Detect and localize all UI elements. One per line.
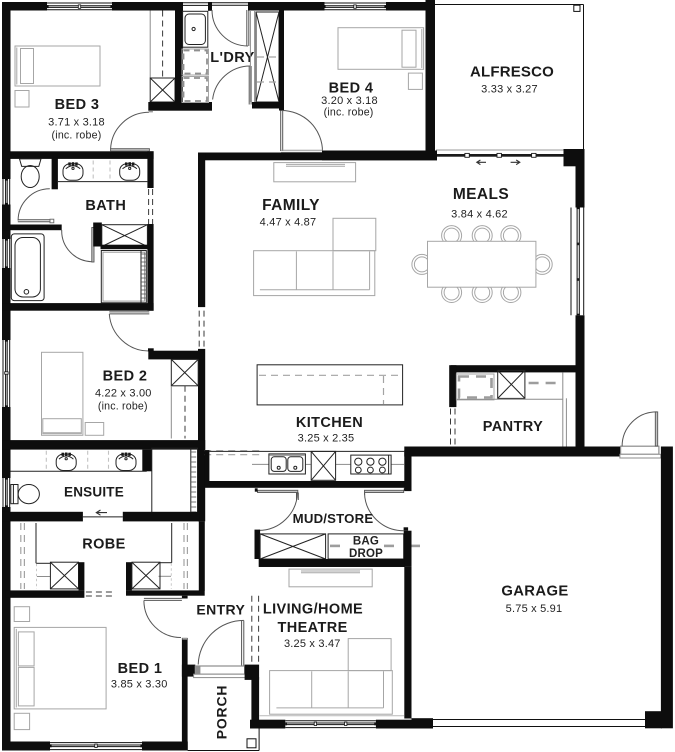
svg-text:3.33 x 3.27: 3.33 x 3.27 — [481, 84, 538, 96]
svg-text:PORCH: PORCH — [214, 685, 230, 740]
svg-text:GARAGE: GARAGE — [501, 584, 568, 600]
svg-text:(inc. robe): (inc. robe) — [52, 130, 102, 142]
svg-text:DROP: DROP — [349, 548, 383, 560]
svg-text:4.47 x 4.87: 4.47 x 4.87 — [260, 217, 317, 229]
svg-text:KITCHEN: KITCHEN — [296, 415, 363, 431]
svg-text:BAG: BAG — [353, 536, 379, 548]
svg-text:PANTRY: PANTRY — [483, 419, 543, 435]
svg-text:(inc. robe): (inc. robe) — [324, 107, 374, 119]
svg-text:BED 2: BED 2 — [103, 369, 148, 385]
svg-text:L'DRY: L'DRY — [210, 50, 254, 66]
svg-text:3.85 x 3.30: 3.85 x 3.30 — [111, 678, 168, 690]
svg-text:ENTRY: ENTRY — [196, 602, 245, 618]
svg-text:ENSUITE: ENSUITE — [64, 485, 124, 500]
svg-text:3.25 x 2.35: 3.25 x 2.35 — [298, 433, 355, 445]
svg-text:BED 3: BED 3 — [55, 97, 100, 113]
svg-text:BED 1: BED 1 — [118, 661, 163, 677]
svg-text:3.84 x 4.62: 3.84 x 4.62 — [451, 209, 508, 221]
svg-text:3.20 x 3.18: 3.20 x 3.18 — [321, 95, 378, 107]
svg-text:FAMILY: FAMILY — [262, 197, 320, 214]
svg-text:3.25 x 3.47: 3.25 x 3.47 — [284, 638, 341, 650]
svg-text:BATH: BATH — [85, 198, 126, 214]
svg-text:MEALS: MEALS — [453, 186, 509, 203]
svg-text:4.22 x 3.00: 4.22 x 3.00 — [95, 387, 152, 399]
svg-text:LIVING/HOME: LIVING/HOME — [263, 602, 363, 618]
svg-text:5.75 x 5.91: 5.75 x 5.91 — [506, 603, 563, 615]
svg-text:ROBE: ROBE — [82, 537, 126, 553]
svg-text:MUD/STORE: MUD/STORE — [293, 511, 374, 526]
svg-text:3.71 x 3.18: 3.71 x 3.18 — [48, 117, 105, 129]
svg-text:ALFRESCO: ALFRESCO — [470, 64, 554, 81]
svg-text:(inc. robe): (inc. robe) — [98, 401, 148, 413]
svg-text:BED 4: BED 4 — [329, 81, 374, 97]
svg-text:THEATRE: THEATRE — [277, 620, 347, 636]
